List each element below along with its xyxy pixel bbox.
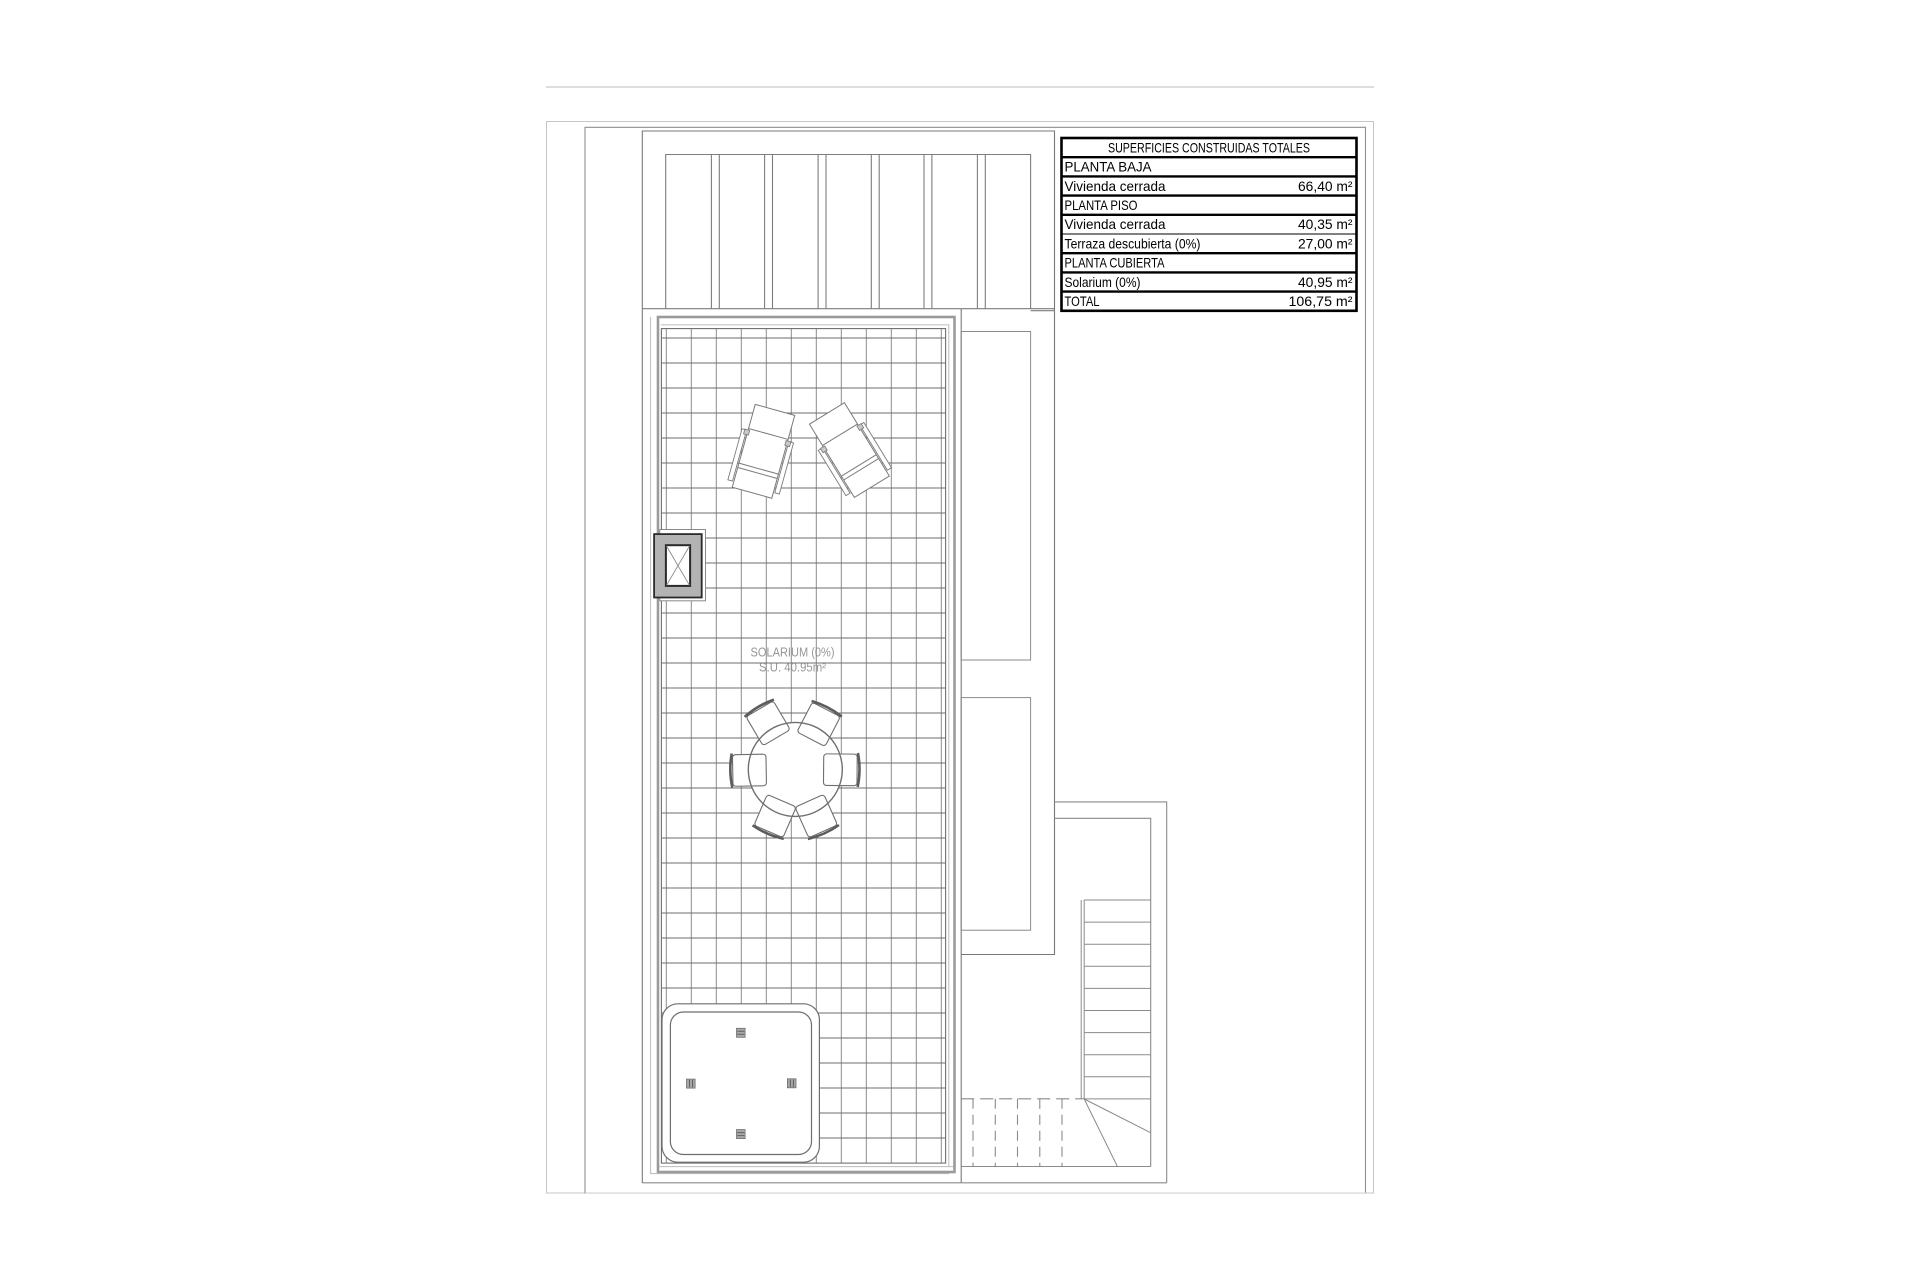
svg-text:40,35 m²: 40,35 m² [1298, 217, 1353, 232]
svg-text:Solarium (0%): Solarium (0%) [1065, 275, 1141, 290]
svg-text:27,00 m²: 27,00 m² [1298, 236, 1353, 251]
svg-text:SUPERFICIES CONSTRUIDAS TOTALE: SUPERFICIES CONSTRUIDAS TOTALES [1108, 140, 1310, 155]
svg-text:Vivienda cerrada: Vivienda cerrada [1065, 217, 1166, 232]
svg-text:Vivienda cerrada: Vivienda cerrada [1065, 179, 1166, 194]
svg-text:40,95 m²: 40,95 m² [1298, 275, 1353, 290]
svg-text:TOTAL: TOTAL [1065, 294, 1100, 309]
svg-text:Terraza descubierta (0%): Terraza descubierta (0%) [1065, 236, 1201, 251]
svg-text:PLANTA CUBIERTA: PLANTA CUBIERTA [1065, 256, 1166, 271]
svg-text:106,75 m²: 106,75 m² [1289, 294, 1353, 309]
svg-text:66,40 m²: 66,40 m² [1298, 179, 1353, 194]
svg-text:PLANTA BAJA: PLANTA BAJA [1065, 160, 1153, 175]
svg-text:SOLARIUM (0%): SOLARIUM (0%) [751, 645, 835, 660]
svg-text:PLANTA PISO: PLANTA PISO [1065, 198, 1138, 213]
